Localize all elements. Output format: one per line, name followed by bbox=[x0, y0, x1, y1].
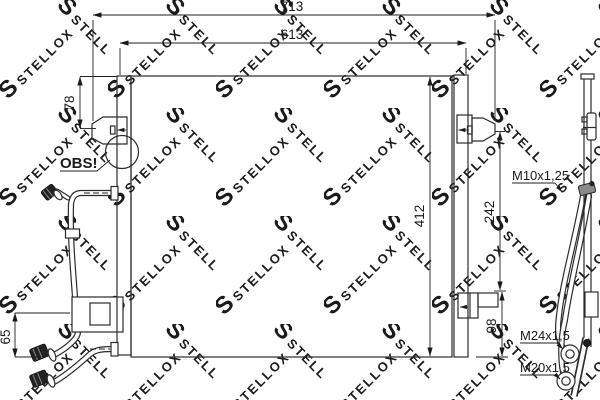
dim-78-label: 78 bbox=[62, 95, 77, 110]
obs-label: OBS! bbox=[60, 155, 98, 172]
watermark-layer bbox=[0, 0, 600, 400]
inlet-flange bbox=[111, 187, 118, 201]
condenser-technical-drawing: S STELLOX S STELLOX bbox=[0, 0, 600, 400]
dim-613-label: 613 bbox=[281, 27, 304, 42]
dim-65-label: 65 bbox=[0, 329, 13, 344]
dim-242-label: 242 bbox=[482, 201, 497, 224]
dim-98-label: 98 bbox=[484, 318, 499, 333]
drier-bracket-box bbox=[72, 297, 123, 332]
pipe-sleeve bbox=[66, 229, 80, 238]
dim-412-label: 412 bbox=[412, 205, 427, 228]
thread-m10-label: M10x1,25 bbox=[512, 168, 569, 183]
outlet-flange bbox=[111, 343, 118, 357]
thread-m24-label: M24x1,5 bbox=[520, 328, 570, 343]
dim-713-label: 713 bbox=[281, 0, 304, 14]
drawing-canvas: S STELLOX S STELLOX bbox=[0, 0, 600, 400]
side-lower-bracket bbox=[585, 292, 598, 317]
thread-m20-label: M20x1,5 bbox=[520, 360, 570, 375]
side-strip-cap bbox=[581, 74, 594, 79]
